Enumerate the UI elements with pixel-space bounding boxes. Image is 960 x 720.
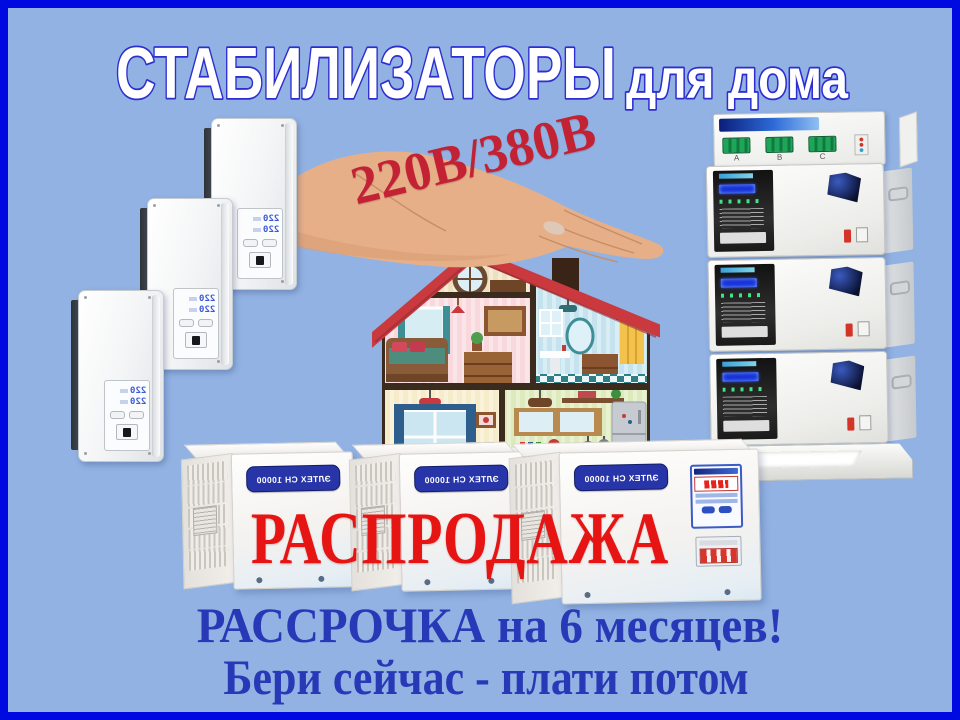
warranty-badge [827, 172, 862, 203]
vent-grille [189, 546, 229, 571]
screw-icon [148, 296, 151, 299]
phase-terminal: B [765, 136, 793, 161]
white-switch [856, 227, 868, 242]
control-panel [715, 264, 776, 346]
phase-terminal: C [808, 136, 836, 161]
module-front [706, 163, 886, 258]
brand-logo [722, 361, 756, 367]
title-suffix: для дома [626, 47, 849, 110]
voltage-display: 220 220 [104, 380, 150, 451]
control-panel [716, 358, 777, 440]
model-badge-text: ЭЛТЕХ СН 10000 [256, 474, 331, 486]
display-voltage-out: 220 [263, 225, 279, 235]
indicator-block [854, 134, 868, 155]
handle-slot [891, 374, 911, 390]
model-badge: ЭЛТЕХ СН 10000 [246, 464, 341, 492]
module-front [709, 351, 889, 446]
display-voltage-in: 220 [199, 294, 215, 304]
tower-module [706, 162, 914, 258]
display-label [253, 228, 261, 232]
model-text [723, 420, 769, 432]
display-voltage-out: 220 [199, 305, 215, 315]
lcd-display [721, 278, 757, 288]
model-badge-text: ЭЛТЕХ СН 10000 [584, 472, 659, 484]
unit-body: 220 220 [78, 290, 164, 462]
mirror [567, 319, 593, 353]
led-row [719, 199, 761, 204]
screw-icon [217, 204, 220, 207]
side-flange [152, 295, 160, 457]
power-switch [185, 332, 207, 348]
handle-slot [888, 186, 908, 202]
model-text [720, 232, 766, 244]
display-label [189, 297, 197, 301]
spec-label [193, 505, 218, 536]
side-flange [221, 203, 229, 365]
panel-button [198, 319, 213, 327]
panel-button [262, 239, 277, 247]
breaker-strip [699, 540, 737, 546]
wall-stabilizer-image: 220 220 [78, 290, 164, 462]
switch-knob [123, 428, 131, 437]
lcd-display [722, 372, 758, 382]
module-switches [846, 321, 870, 336]
module-switches [844, 227, 868, 242]
model-badge: ЭЛТЕХ СН 10000 [574, 463, 669, 491]
digital-display [694, 476, 738, 492]
foot [724, 589, 730, 595]
phase-distribution-box: A B C [713, 111, 886, 168]
power-switch [249, 252, 271, 268]
terminal-block [765, 136, 793, 152]
warranty-badge [830, 360, 865, 391]
red-switch [846, 323, 853, 336]
panel-button [702, 506, 715, 513]
white-switch [859, 415, 871, 430]
svg-text:СТАБИЛИЗАТОРЫ для дома: СТАБИЛИЗАТОРЫ для дома [116, 34, 849, 114]
display-label [253, 217, 261, 221]
screw-icon [281, 280, 284, 283]
screw-icon [217, 360, 220, 363]
panel-header [694, 468, 738, 475]
brand-logo [719, 173, 753, 179]
panel-button [129, 411, 144, 419]
led-row [723, 387, 765, 392]
vent-grille [515, 460, 555, 487]
screw-icon [84, 296, 87, 299]
display-voltage-in: 220 [263, 214, 279, 224]
display-segments [704, 480, 728, 489]
led-row [721, 293, 763, 298]
phase-terminal: A [722, 137, 750, 162]
tower-bracket [899, 111, 918, 167]
screw-icon [84, 452, 87, 455]
model-text [722, 326, 768, 338]
spec-text [721, 302, 765, 323]
brand-logo [721, 267, 755, 273]
switch-knob [256, 256, 264, 265]
voltage-display: 220 220 [173, 288, 219, 359]
banner-title: СТАБИЛИЗАТОРЫ для дома [8, 30, 952, 114]
title-main: СТАБИЛИЗАТОРЫ [116, 34, 616, 114]
white-switch [858, 321, 870, 336]
red-switch [847, 417, 854, 430]
screw-icon [153, 204, 156, 207]
installment-offer: РАССРОЧКА на 6 месяцев! [197, 600, 784, 650]
foot [424, 579, 430, 585]
power-switch [116, 424, 138, 440]
screw-icon [148, 452, 151, 455]
tower-module [709, 350, 917, 446]
panel-row [696, 499, 738, 504]
phase-label: A [723, 153, 751, 162]
phase-label: C [809, 152, 837, 161]
screw-icon [217, 124, 220, 127]
model-badge-text: ЭЛТЕХ СН 10000 [424, 474, 499, 486]
red-switch [844, 230, 851, 243]
screw-icon [281, 124, 284, 127]
handle-slot [890, 280, 910, 296]
stabilizer-tower-image: A B C [705, 102, 942, 482]
breaker-levers [700, 548, 738, 564]
spec-text [720, 208, 764, 229]
display-voltage-out: 220 [130, 397, 146, 407]
module-front [707, 257, 887, 352]
panel-button [243, 239, 258, 247]
brand-strip [719, 117, 819, 132]
display-label [120, 400, 128, 404]
module-switches [847, 415, 871, 430]
model-badge: ЭЛТЕХ СН 10000 [414, 464, 509, 492]
panel-button [719, 506, 732, 513]
sale-label: РАСПРОДАЖА [251, 503, 669, 575]
unit-side-vents [181, 453, 236, 590]
panel-row [695, 493, 737, 498]
circuit-breaker [695, 536, 742, 567]
control-panel [713, 170, 774, 252]
panel-button [110, 411, 125, 419]
spec-text [723, 396, 767, 417]
terminal-block [808, 136, 836, 152]
warranty-badge [829, 266, 864, 297]
panel-button [179, 319, 194, 327]
lcd-display [719, 184, 755, 194]
display-label [120, 389, 128, 393]
phase-label: B [766, 152, 794, 161]
side-flange [285, 123, 293, 285]
switch-knob [192, 336, 200, 345]
display-label [189, 308, 197, 312]
display-voltage-in: 220 [130, 386, 146, 396]
tower-module [707, 256, 915, 352]
voltage-display: 220 220 [237, 208, 283, 279]
control-panel [690, 464, 743, 529]
promo-banner: СТАБИЛИЗАТОРЫ для дома 220В/380В [0, 0, 960, 720]
terminal-block [722, 137, 750, 153]
installment-slogan: Бери сейчас - плати потом [223, 652, 748, 702]
